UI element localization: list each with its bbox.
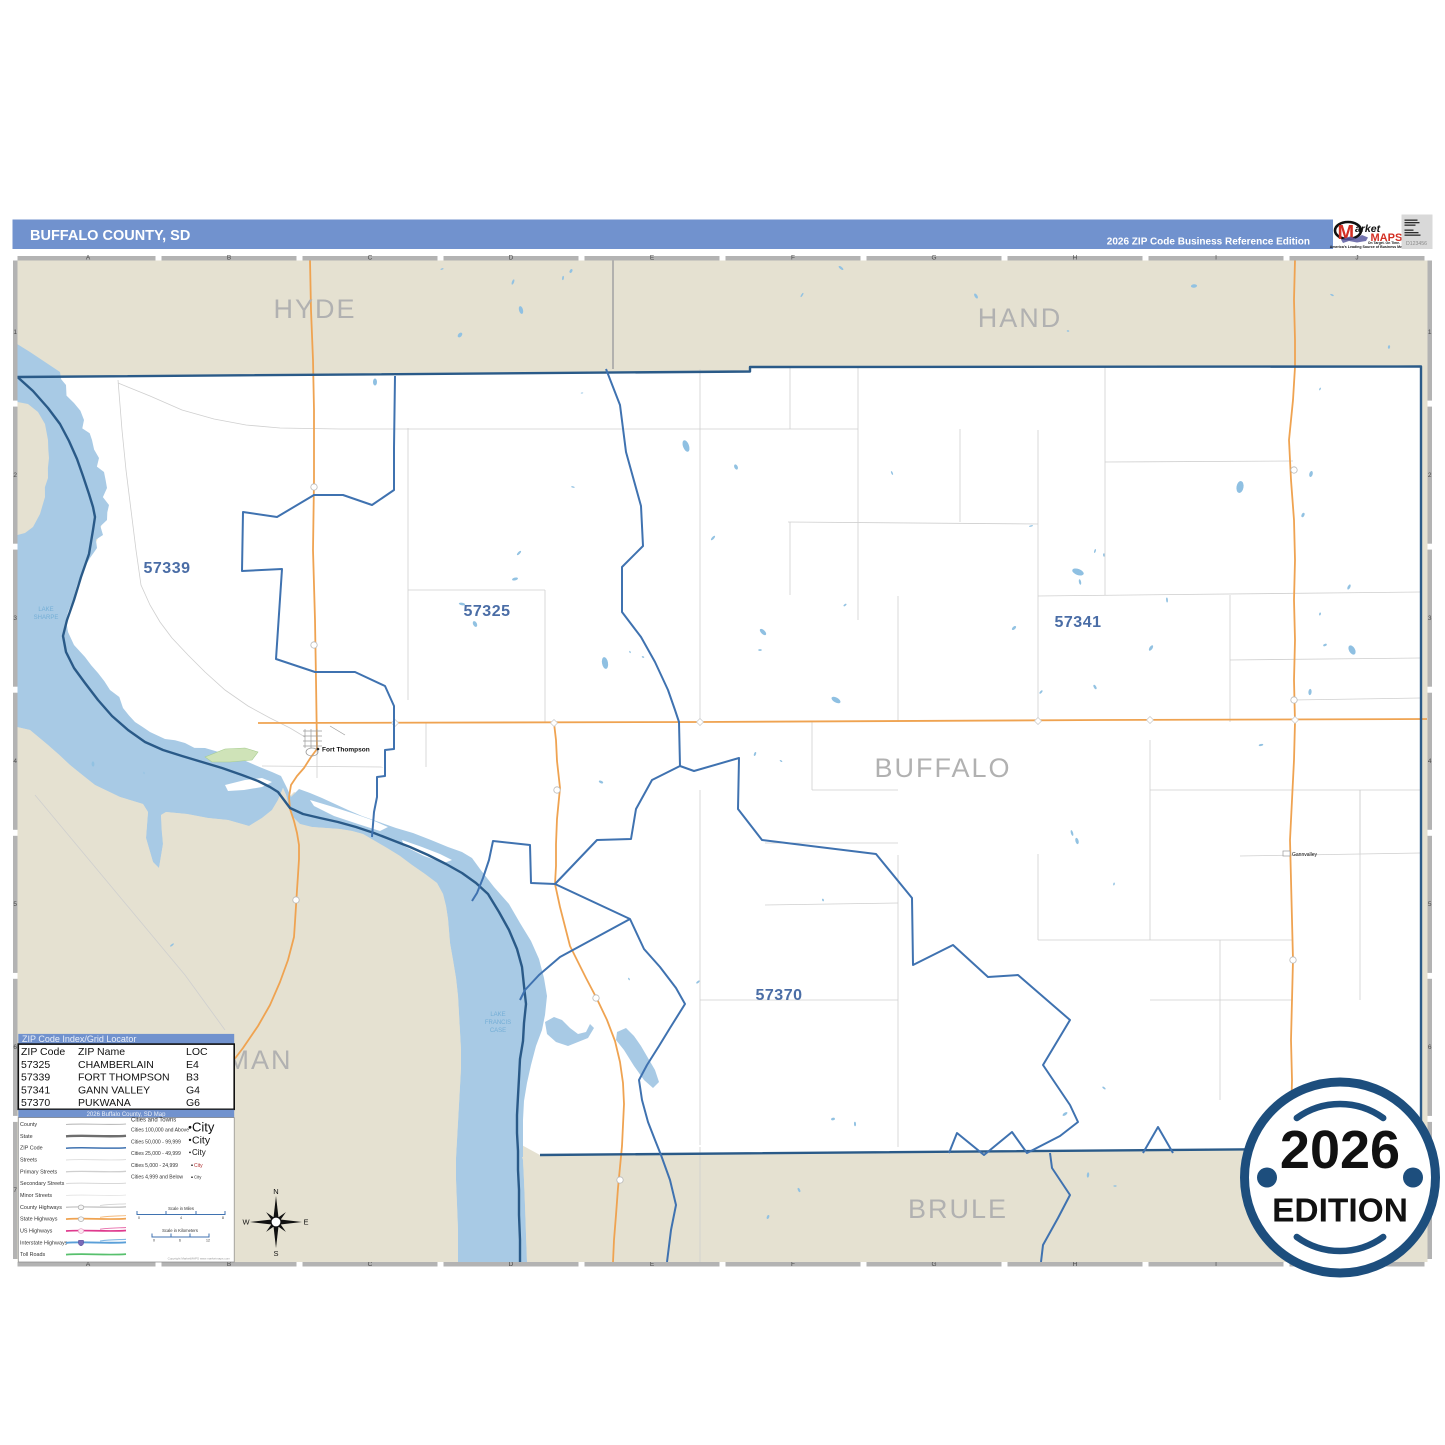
svg-text:5: 5	[1428, 901, 1432, 908]
svg-text:57339: 57339	[21, 1072, 50, 1084]
svg-text:G4: G4	[186, 1084, 200, 1096]
svg-text:CASE: CASE	[490, 1028, 506, 1034]
svg-text:ZIP Code: ZIP Code	[20, 1146, 43, 1152]
svg-text:Minor Streets: Minor Streets	[20, 1193, 52, 1199]
svg-text:Toll Roads: Toll Roads	[20, 1252, 45, 1258]
svg-text:ZIP Name: ZIP Name	[78, 1046, 125, 1058]
svg-text:Fort Thompson: Fort Thompson	[322, 747, 370, 754]
svg-text:57325: 57325	[21, 1059, 50, 1071]
svg-text:8: 8	[222, 1216, 224, 1220]
svg-text:6: 6	[1428, 1044, 1432, 1051]
svg-text:0: 0	[153, 1239, 155, 1243]
svg-text:D123456: D123456	[1406, 241, 1427, 247]
svg-text:57370: 57370	[21, 1097, 50, 1109]
svg-text:3: 3	[13, 615, 17, 622]
svg-text:Streets: Streets	[20, 1158, 37, 1164]
svg-text:E: E	[303, 1218, 308, 1227]
svg-text:EDITION: EDITION	[1272, 1193, 1408, 1230]
svg-text:HYDE: HYDE	[273, 294, 356, 324]
svg-text:County: County	[20, 1122, 37, 1128]
svg-text:LAKE: LAKE	[490, 1012, 505, 1018]
svg-text:State: State	[20, 1134, 33, 1140]
svg-text:2: 2	[13, 472, 17, 479]
svg-text:City: City	[192, 1148, 206, 1157]
svg-text:BUFFALO: BUFFALO	[874, 753, 1011, 783]
svg-text:BRULE: BRULE	[908, 1194, 1008, 1224]
svg-text:Copyright MarketMAPS www.marke: Copyright MarketMAPS www.marketmaps.com	[168, 1257, 231, 1261]
svg-text:US Highways: US Highways	[20, 1229, 53, 1235]
svg-text:Scale in Kilometers: Scale in Kilometers	[162, 1228, 198, 1233]
svg-text:57339: 57339	[144, 560, 191, 577]
svg-text:County Highways: County Highways	[20, 1205, 62, 1211]
svg-text:BUFFALO COUNTY, SD: BUFFALO COUNTY, SD	[30, 228, 190, 244]
svg-text:W: W	[242, 1218, 250, 1227]
svg-text:Secondary Streets: Secondary Streets	[20, 1181, 65, 1187]
svg-text:City: City	[194, 1175, 202, 1180]
svg-text:3: 3	[1428, 615, 1432, 622]
svg-text:State Highways: State Highways	[20, 1217, 58, 1223]
svg-text:57370: 57370	[756, 987, 803, 1004]
svg-text:2026 ZIP Code Business Referen: 2026 ZIP Code Business Reference Edition	[1107, 237, 1310, 248]
svg-text:America's Leading Source of Bu: America's Leading Source of Business Map…	[1330, 245, 1407, 249]
svg-text:City: City	[192, 1134, 211, 1146]
svg-text:0: 0	[138, 1216, 140, 1220]
svg-text:6: 6	[13, 1044, 17, 1051]
svg-text:Cities 4,999 and Below: Cities 4,999 and Below	[131, 1175, 183, 1181]
svg-text:LOC: LOC	[186, 1046, 208, 1058]
svg-text:HAND: HAND	[978, 303, 1063, 333]
svg-text:57341: 57341	[21, 1084, 50, 1096]
svg-text:City: City	[192, 1120, 215, 1135]
svg-text:CHAMBERLAIN: CHAMBERLAIN	[78, 1059, 154, 1071]
svg-text:57325: 57325	[464, 603, 511, 620]
svg-text:Cities 50,000 - 99,999: Cities 50,000 - 99,999	[131, 1139, 181, 1145]
svg-text:57341: 57341	[1055, 614, 1102, 631]
svg-text:LAKE: LAKE	[38, 607, 53, 613]
svg-text:5: 5	[13, 901, 17, 908]
svg-text:ZIP Code Index/Grid Locator: ZIP Code Index/Grid Locator	[22, 1034, 136, 1044]
svg-text:ZIP Code: ZIP Code	[21, 1046, 65, 1058]
svg-text:PUKWANA: PUKWANA	[78, 1097, 131, 1109]
svg-text:4: 4	[1428, 758, 1432, 765]
svg-text:2: 2	[1428, 472, 1432, 479]
svg-text:E4: E4	[186, 1059, 199, 1071]
svg-text:1: 1	[1428, 329, 1432, 336]
svg-text:FORT THOMPSON: FORT THOMPSON	[78, 1072, 170, 1084]
svg-text:Gannvalley: Gannvalley	[1292, 852, 1318, 858]
svg-text:Cities 5,000 - 24,999: Cities 5,000 - 24,999	[131, 1163, 178, 1169]
svg-text:4: 4	[180, 1216, 182, 1220]
svg-text:4: 4	[13, 758, 17, 765]
svg-text:Cities 25,000 - 49,999: Cities 25,000 - 49,999	[131, 1151, 181, 1157]
svg-text:City: City	[194, 1163, 203, 1169]
svg-text:S: S	[273, 1249, 278, 1258]
svg-text:6: 6	[179, 1239, 181, 1243]
svg-text:7: 7	[13, 1187, 17, 1194]
svg-text:N: N	[273, 1187, 278, 1196]
svg-text:Interstate Highways: Interstate Highways	[20, 1240, 68, 1246]
svg-text:1: 1	[13, 329, 17, 336]
svg-text:Primary Streets: Primary Streets	[20, 1169, 57, 1175]
svg-text:G6: G6	[186, 1097, 200, 1109]
svg-text:Cities and Towns: Cities and Towns	[131, 1118, 176, 1124]
svg-text:Cities 100,000 and Above: Cities 100,000 and Above	[131, 1128, 189, 1134]
svg-text:SHARPE: SHARPE	[34, 615, 59, 621]
svg-text:FRANCIS: FRANCIS	[485, 1020, 511, 1026]
svg-text:12: 12	[206, 1239, 210, 1243]
svg-text:2026: 2026	[1280, 1120, 1400, 1180]
svg-text:GANN VALLEY: GANN VALLEY	[78, 1084, 150, 1096]
svg-text:B3: B3	[186, 1072, 199, 1084]
svg-text:Scale in Miles: Scale in Miles	[168, 1206, 194, 1211]
